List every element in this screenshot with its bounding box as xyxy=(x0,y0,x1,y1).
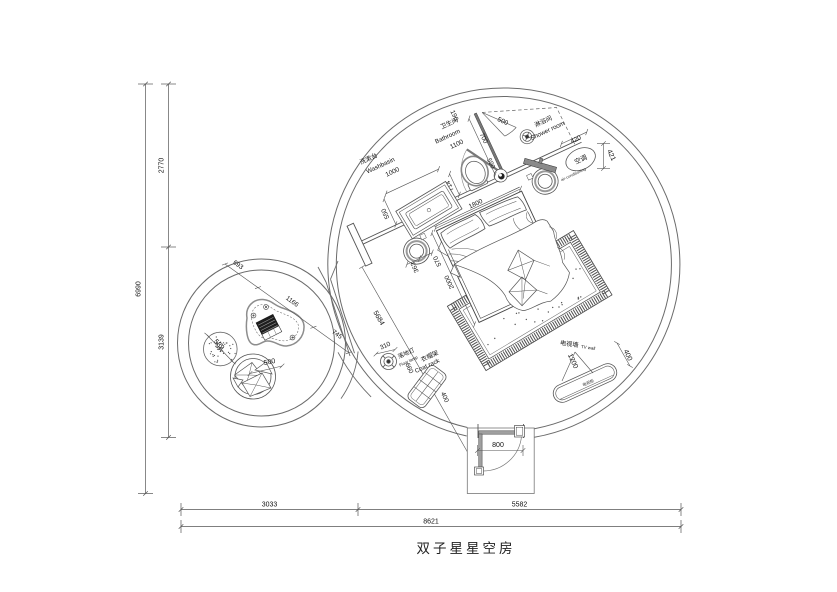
svg-text:6990: 6990 xyxy=(136,281,143,297)
svg-text:800: 800 xyxy=(492,442,504,449)
svg-text:8621: 8621 xyxy=(423,519,439,526)
svg-text:3139: 3139 xyxy=(159,334,166,350)
svg-text:2770: 2770 xyxy=(159,158,166,174)
svg-text:5582: 5582 xyxy=(512,502,528,509)
svg-text:3033: 3033 xyxy=(262,502,278,509)
svg-text:双子星星空房: 双子星星空房 xyxy=(417,541,516,556)
